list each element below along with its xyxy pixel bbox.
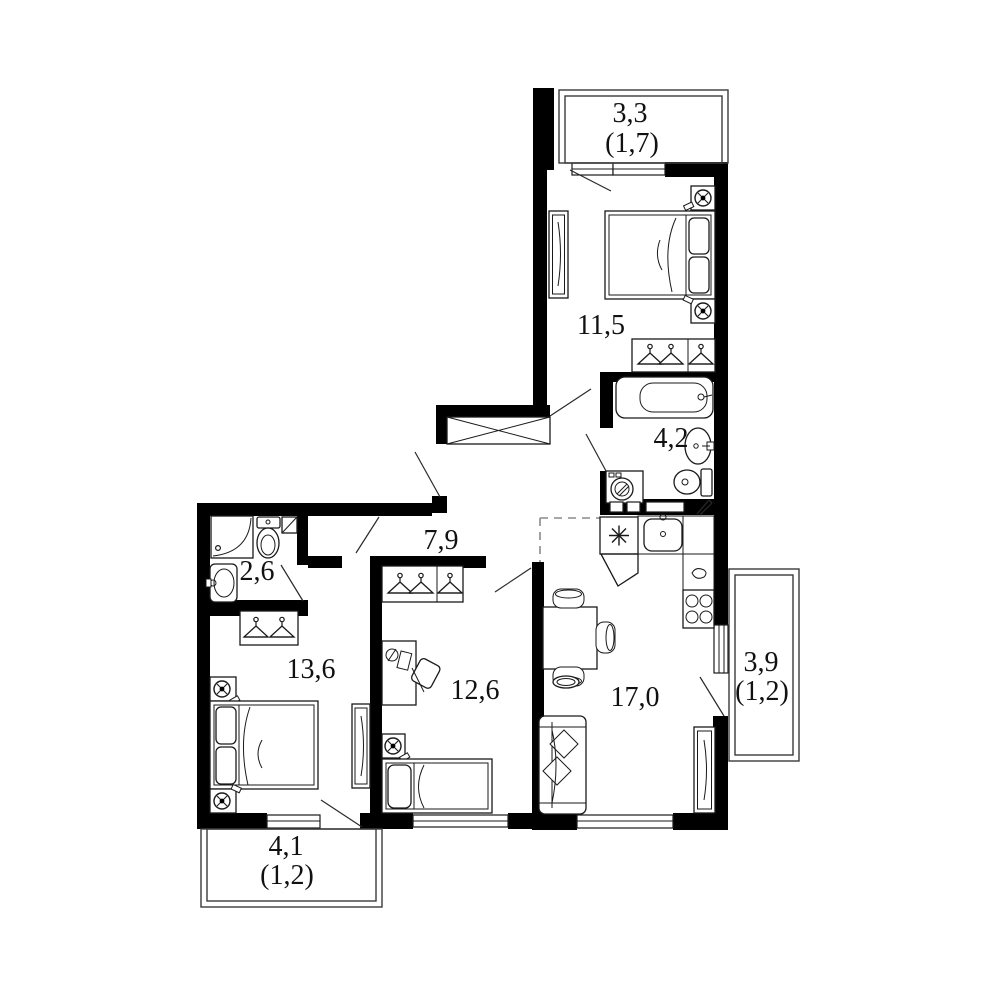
door-swing-room-middle (495, 568, 531, 592)
tall-wardrobe-icon (352, 704, 370, 788)
nightstand-icon (210, 784, 241, 813)
desk-icon (382, 641, 416, 705)
tall-wardrobe-icon (694, 727, 715, 813)
bathroom-small-area-label: 2,6 (240, 556, 275, 587)
balcony-right-area-label: 3,9 (744, 647, 779, 678)
door-swing-bedroom-top (550, 389, 591, 416)
kettle-counter-icon (683, 554, 714, 590)
door-swing-entrance (415, 452, 440, 497)
kitchen-sink-icon (638, 514, 714, 554)
fridge-icon (600, 517, 638, 554)
nightstand-icon (684, 186, 715, 210)
corner-cabinet-icon (601, 554, 638, 586)
balcony-bottom-area-label: 4,1 (269, 831, 304, 862)
balcony-top-reduced-label: (1,7) (605, 128, 659, 159)
door-swing-balcony-right (700, 677, 724, 716)
toilet-icon (674, 469, 712, 496)
built-in-closet-icon (447, 417, 550, 444)
wardrobe-hangers-icon (382, 566, 463, 602)
dining-table-icon (543, 589, 615, 686)
floor-plan-page: 3,3 (1,7) 11,5 4,2 7,9 2,6 13,6 12,6 17,… (0, 0, 1000, 1000)
balcony-bottom-reduced-label: (1,2) (260, 860, 314, 891)
bedroom-top-area-label: 11,5 (577, 310, 625, 341)
wardrobe-hangers-icon (632, 339, 715, 372)
balcony-top-area-label: 3,3 (613, 98, 648, 129)
balcony-right-reduced-label: (1,2) (735, 676, 789, 707)
side-table-icon (553, 676, 579, 688)
wall-cabinet-icon (282, 517, 297, 533)
room-middle-area-label: 12,6 (451, 675, 500, 706)
window-bedroom-top (613, 163, 665, 175)
window-balcony-door-sill-top (572, 163, 613, 175)
vent-boxes (610, 502, 684, 512)
nightstand-icon (683, 295, 715, 323)
door-swing-bathroom-main (586, 434, 606, 471)
kitchen-open-boundary (540, 518, 600, 562)
window-room-middle (413, 815, 508, 827)
sofa-icon (539, 716, 586, 814)
bedroom-left-area-label: 13,6 (287, 654, 336, 685)
bathtub-icon (616, 377, 713, 418)
bathroom-main-area-label: 4,2 (654, 423, 689, 454)
shower-cabin-icon (211, 516, 253, 558)
window-kitchen-right (714, 625, 728, 673)
door-swing-bathroom-small (281, 565, 303, 601)
window-kitchen-bottom (577, 815, 673, 828)
tall-wardrobe-icon (549, 211, 568, 298)
floor-plan-drawing: 3,3 (1,7) 11,5 4,2 7,9 2,6 13,6 12,6 17,… (0, 0, 1000, 1000)
double-bed-icon (210, 701, 318, 789)
double-bed-icon (605, 211, 715, 299)
kitchen-area-label: 17,0 (611, 682, 660, 713)
kitchen-furniture (539, 514, 715, 814)
single-bed-icon (382, 759, 492, 813)
nightstand-icon (382, 734, 410, 762)
hallway-area-label: 7,9 (424, 525, 459, 556)
wash-basin-icon (685, 428, 714, 464)
door-swing-bedroom-left (356, 517, 379, 553)
wash-basin-icon (206, 564, 237, 602)
toilet-icon (257, 517, 280, 558)
wardrobe-hangers-icon (240, 611, 298, 645)
bedroom-top-furniture (549, 186, 715, 372)
washing-machine-icon (606, 471, 643, 503)
window-bedroom-left (267, 815, 320, 828)
stove-icon (683, 590, 714, 628)
bedroom-left-furniture (210, 611, 370, 813)
door-swing-balcony-bottom (321, 800, 362, 827)
